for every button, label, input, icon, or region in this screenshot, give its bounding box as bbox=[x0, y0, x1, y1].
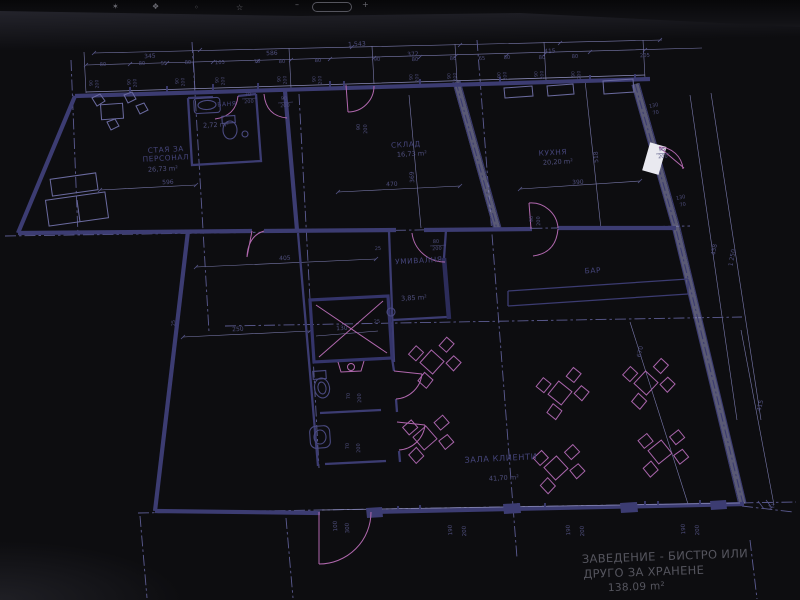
paper-bottom-shadow bbox=[0, 530, 260, 600]
zoom-indicator-pill bbox=[312, 2, 352, 12]
zoom-out-icon: – bbox=[295, 1, 299, 9]
faint-glyph-3: ◦ bbox=[194, 4, 199, 12]
zoom-in-icon: + bbox=[362, 1, 369, 9]
drawing-paper bbox=[0, 0, 800, 600]
faint-glyph-2: ❖ bbox=[152, 3, 159, 11]
faint-glyph-1: ✶ bbox=[112, 3, 119, 11]
photo-of-floor-plan: СТАЯ ЗАПЕРСОНАЛ26,73 m²БАНЯ2,72 m²СКЛАД1… bbox=[0, 0, 800, 600]
star-icon: ☆ bbox=[236, 4, 243, 12]
